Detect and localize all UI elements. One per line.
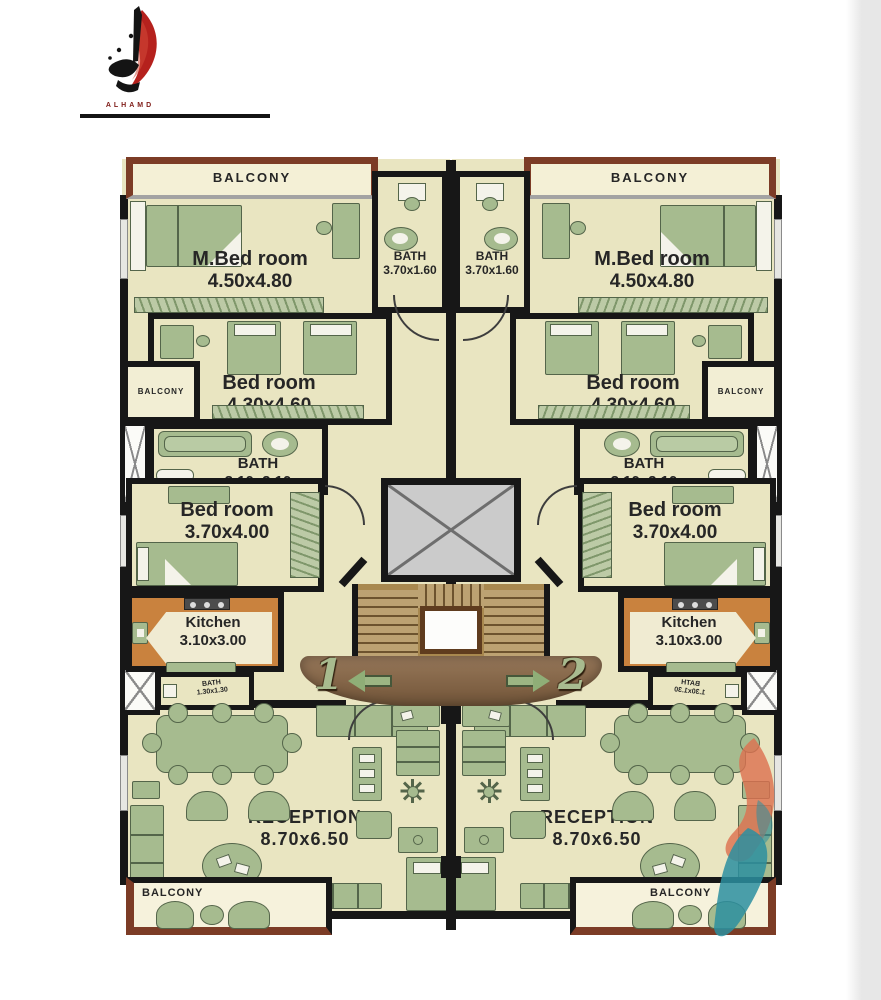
room-balcony-small: BALCONY xyxy=(702,361,780,423)
room-label-bath-small: BATH 1.30x1.30 xyxy=(176,676,247,700)
elevator-x-icon xyxy=(388,485,514,575)
stair-treads-top xyxy=(418,584,484,608)
stool xyxy=(570,221,586,235)
armchair xyxy=(186,791,228,821)
sink xyxy=(725,684,739,698)
bed-twin xyxy=(621,321,675,375)
central-wall-bottom xyxy=(446,700,456,930)
wardrobe xyxy=(212,405,364,419)
cabinet xyxy=(352,747,382,801)
side-table xyxy=(398,827,438,853)
stair-void xyxy=(420,606,482,654)
balcony-table xyxy=(200,905,224,925)
sink xyxy=(384,227,418,251)
dining-chair xyxy=(168,765,188,785)
window xyxy=(120,219,128,279)
side-table xyxy=(462,705,510,727)
wardrobe xyxy=(582,492,612,578)
air-shaft xyxy=(742,665,782,715)
desk xyxy=(462,730,506,776)
wardrobe xyxy=(538,405,690,419)
sink xyxy=(163,684,177,698)
arrow-left-icon xyxy=(348,670,394,692)
dining-chair xyxy=(254,765,274,785)
armchair xyxy=(510,811,546,839)
room-label-kitchen: Kitchen 3.10x3.00 xyxy=(154,614,272,650)
room-label-bath-master: BATH 3.70x1.60 xyxy=(378,249,442,278)
dining-chair xyxy=(212,765,232,785)
bed-twin xyxy=(545,321,599,375)
dining-chair xyxy=(600,733,620,753)
cabinet xyxy=(520,747,550,801)
armchair xyxy=(612,791,654,821)
bathtub xyxy=(158,431,252,457)
wardrobe xyxy=(290,492,320,578)
room-balcony-bottom: BALCONY xyxy=(126,877,332,935)
page: { "logo": { "brand": "ALHAMD" }, "rooms"… xyxy=(0,0,881,1000)
tv-unit xyxy=(132,781,160,799)
dining-chair xyxy=(168,703,188,723)
staircase xyxy=(352,584,550,660)
bed-double xyxy=(664,542,766,586)
room-label-balcony-bottom: BALCONY xyxy=(142,887,252,900)
stove xyxy=(184,598,230,610)
room-balcony-small: BALCONY xyxy=(122,361,200,423)
dining-chair xyxy=(670,765,690,785)
dining-chair xyxy=(254,703,274,723)
unit-number-2: 2 xyxy=(558,650,587,699)
stove xyxy=(672,598,718,610)
room-bedroom-3: Bed room 3.70x4.00 xyxy=(126,478,324,592)
wall-nub xyxy=(441,856,461,878)
dresser xyxy=(160,325,194,359)
kitchen-sink xyxy=(754,622,770,644)
wardrobe xyxy=(134,297,324,313)
office-chair xyxy=(400,779,424,803)
dresser xyxy=(708,325,742,359)
balcony-chair xyxy=(156,901,194,929)
balcony-chair xyxy=(228,901,270,929)
wardrobe xyxy=(578,297,768,313)
toilet-bowl xyxy=(482,197,498,211)
toilet-bowl xyxy=(404,197,420,211)
decor xyxy=(196,335,210,347)
room-label-master-bedroom: M.Bed room 4.50x4.80 xyxy=(542,247,762,294)
bed-twin xyxy=(227,321,281,375)
room-label-balcony-small: BALCONY xyxy=(128,387,194,397)
armchair xyxy=(356,811,392,839)
office-chair xyxy=(478,779,502,803)
armchair xyxy=(248,791,290,821)
sink xyxy=(262,431,298,457)
unit-number-1: 1 xyxy=(314,650,343,699)
dining-chair xyxy=(142,733,162,753)
kitchen-sink xyxy=(132,622,148,644)
bed-twin xyxy=(303,321,357,375)
stair-treads-left xyxy=(358,590,418,660)
arrow-right-icon xyxy=(504,670,550,692)
air-shaft xyxy=(120,665,160,715)
dining-chair xyxy=(212,703,232,723)
window xyxy=(774,219,782,279)
bathtub xyxy=(650,431,744,457)
window xyxy=(120,755,128,811)
sink xyxy=(604,431,640,457)
room-kitchen: Kitchen 3.10x3.00 xyxy=(618,592,776,672)
elevator-shaft xyxy=(381,478,521,582)
bottom-wall xyxy=(326,911,452,919)
room-label-balcony-top: BALCONY xyxy=(133,170,371,186)
room-balcony-top: BALCONY xyxy=(524,157,776,199)
room-kitchen: Kitchen 3.10x3.00 xyxy=(126,592,284,672)
room-bath-small: BATH 1.30x1.30 xyxy=(648,672,746,710)
dining-chair xyxy=(628,703,648,723)
room-label-balcony-small: BALCONY xyxy=(708,387,774,397)
dining-chair xyxy=(670,703,690,723)
room-label-kitchen: Kitchen 3.10x3.00 xyxy=(630,614,748,650)
room-label-bath-master: BATH 3.70x1.60 xyxy=(460,249,524,278)
decor xyxy=(692,335,706,347)
bottom-wall xyxy=(450,911,576,919)
room-label-balcony-top: BALCONY xyxy=(531,170,769,186)
side-table xyxy=(464,827,504,853)
dining-chair xyxy=(714,703,734,723)
room-bath-master: BATH 3.70x1.60 xyxy=(372,171,448,313)
watermark-logo xyxy=(688,736,792,948)
room-bedroom-3: Bed room 3.70x4.00 xyxy=(578,478,776,592)
room-label-master-bedroom: M.Bed room 4.50x4.80 xyxy=(140,247,360,294)
stool xyxy=(316,221,332,235)
balcony-chair xyxy=(632,901,674,929)
room-balcony-top: BALCONY xyxy=(126,157,378,199)
dining-chair xyxy=(628,765,648,785)
stair-treads-right xyxy=(484,590,544,660)
dining-chair xyxy=(282,733,302,753)
bed-double xyxy=(136,542,238,586)
room-label-bath-small: BATH 1.30x1.30 xyxy=(654,676,725,700)
room-bath-master: BATH 3.70x1.60 xyxy=(454,171,530,313)
desk xyxy=(396,730,440,776)
side-table xyxy=(392,705,440,727)
sink xyxy=(484,227,518,251)
